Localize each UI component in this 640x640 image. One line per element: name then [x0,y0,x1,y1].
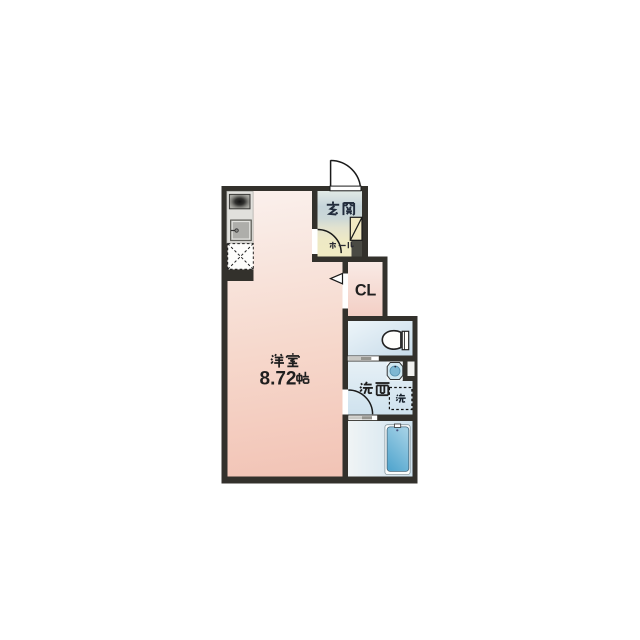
svg-text:8.72: 8.72 [260,369,297,390]
svg-text:CL: CL [355,281,376,299]
